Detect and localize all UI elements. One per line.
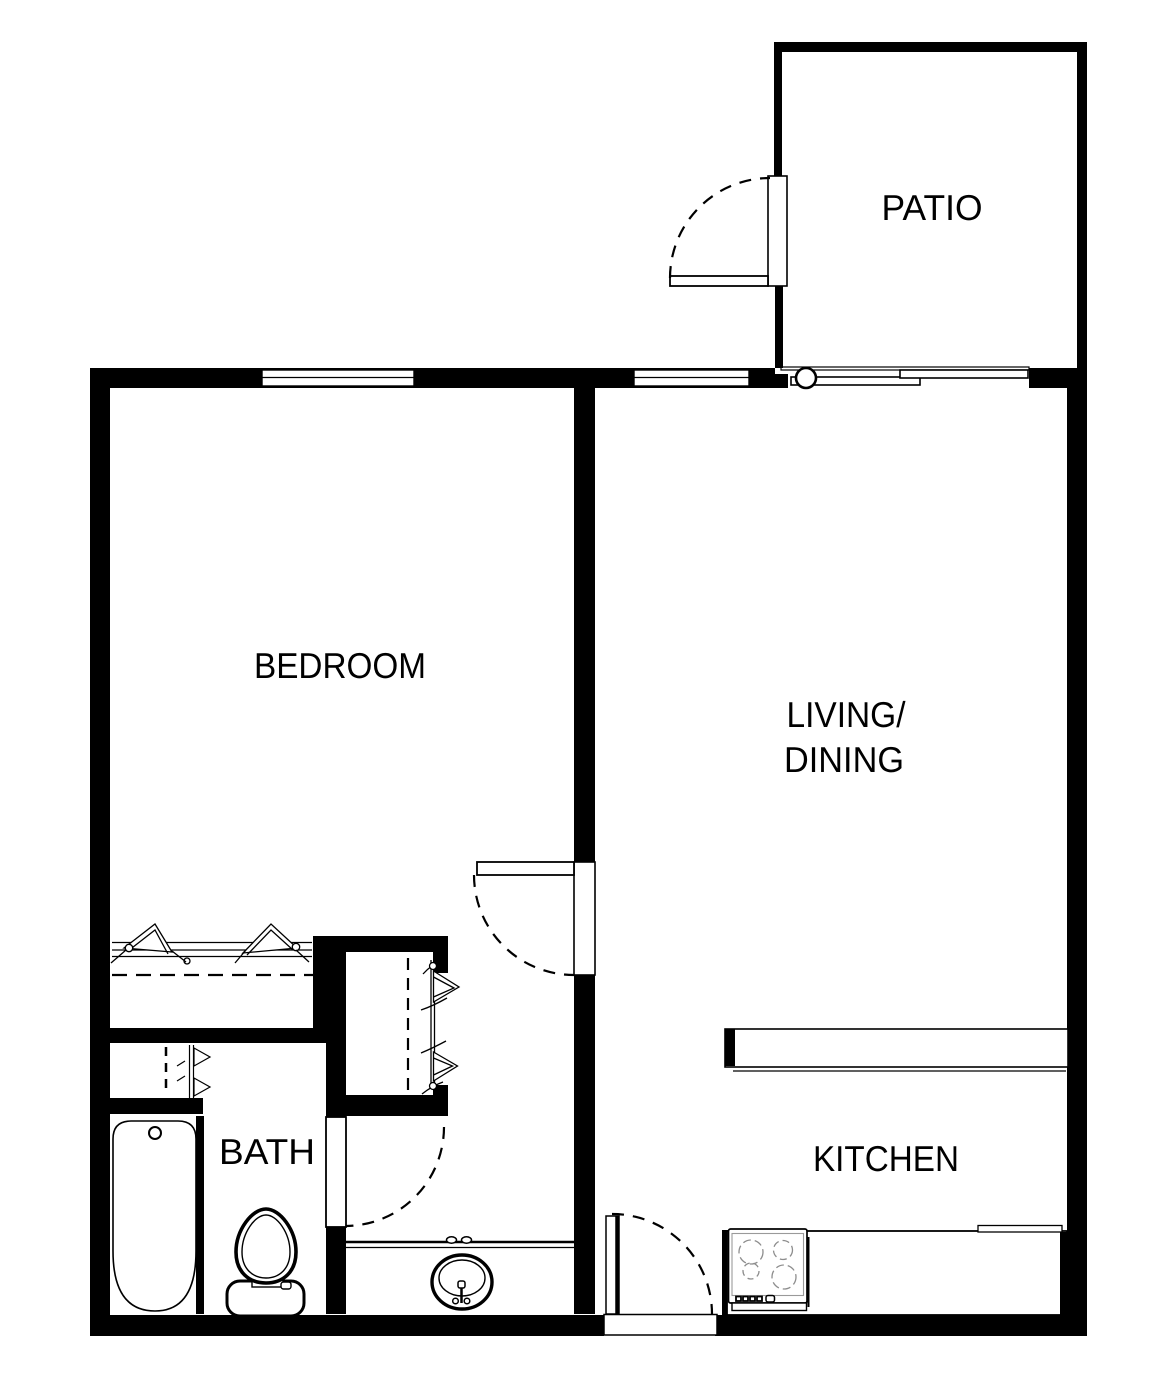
svg-text:BATH: BATH bbox=[219, 1131, 315, 1172]
svg-text:BEDROOM: BEDROOM bbox=[254, 645, 426, 686]
svg-text:PATIO: PATIO bbox=[882, 187, 983, 228]
svg-text:KITCHEN: KITCHEN bbox=[813, 1138, 959, 1179]
svg-text:LIVING/: LIVING/ bbox=[787, 694, 906, 735]
svg-text:DINING: DINING bbox=[784, 739, 904, 780]
